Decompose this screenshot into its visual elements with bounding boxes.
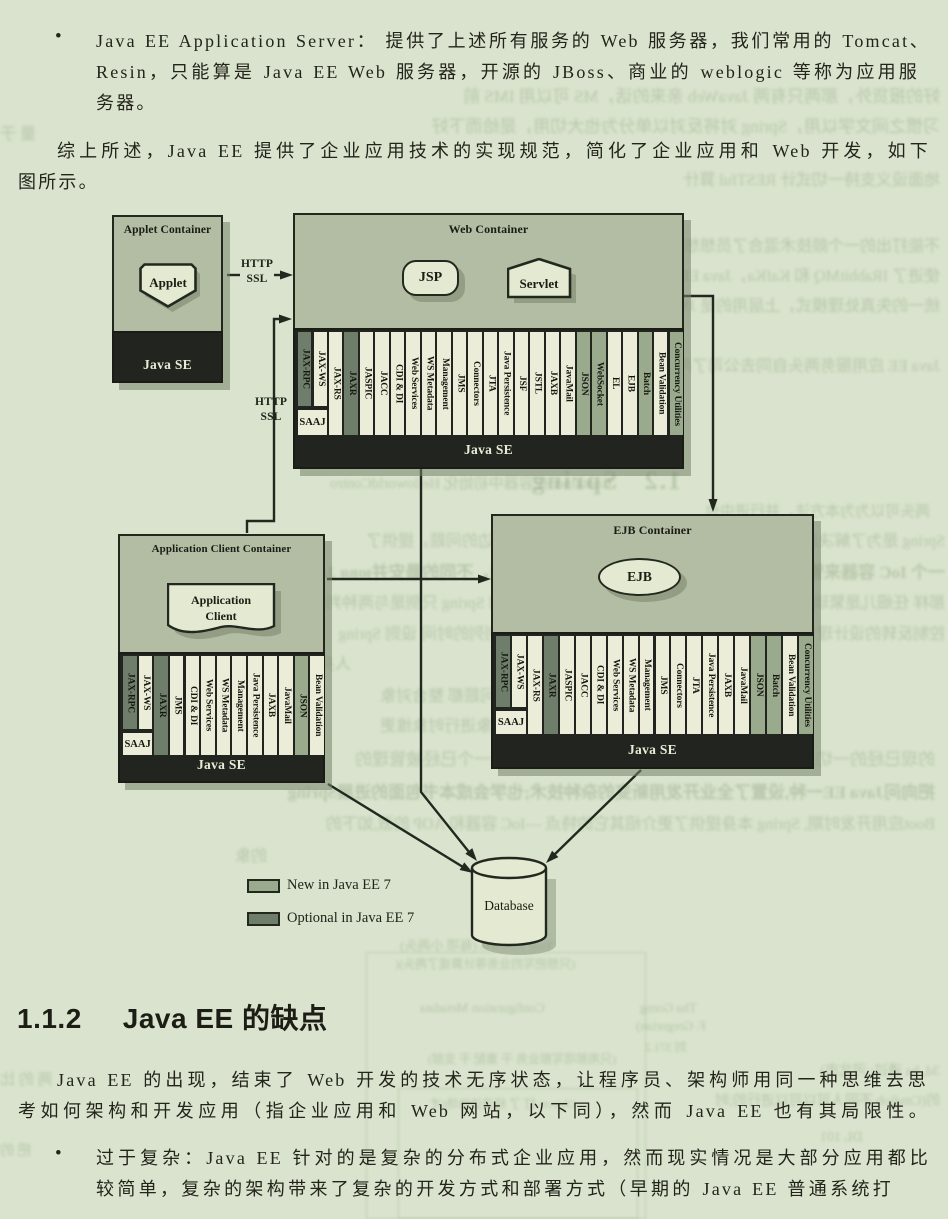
svg-text:Application: Application — [191, 593, 251, 607]
svg-text:Client: Client — [205, 609, 236, 623]
svg-text:Servlet: Servlet — [520, 276, 560, 291]
svg-text:Database: Database — [484, 898, 533, 913]
svg-text:Applet: Applet — [149, 275, 187, 290]
